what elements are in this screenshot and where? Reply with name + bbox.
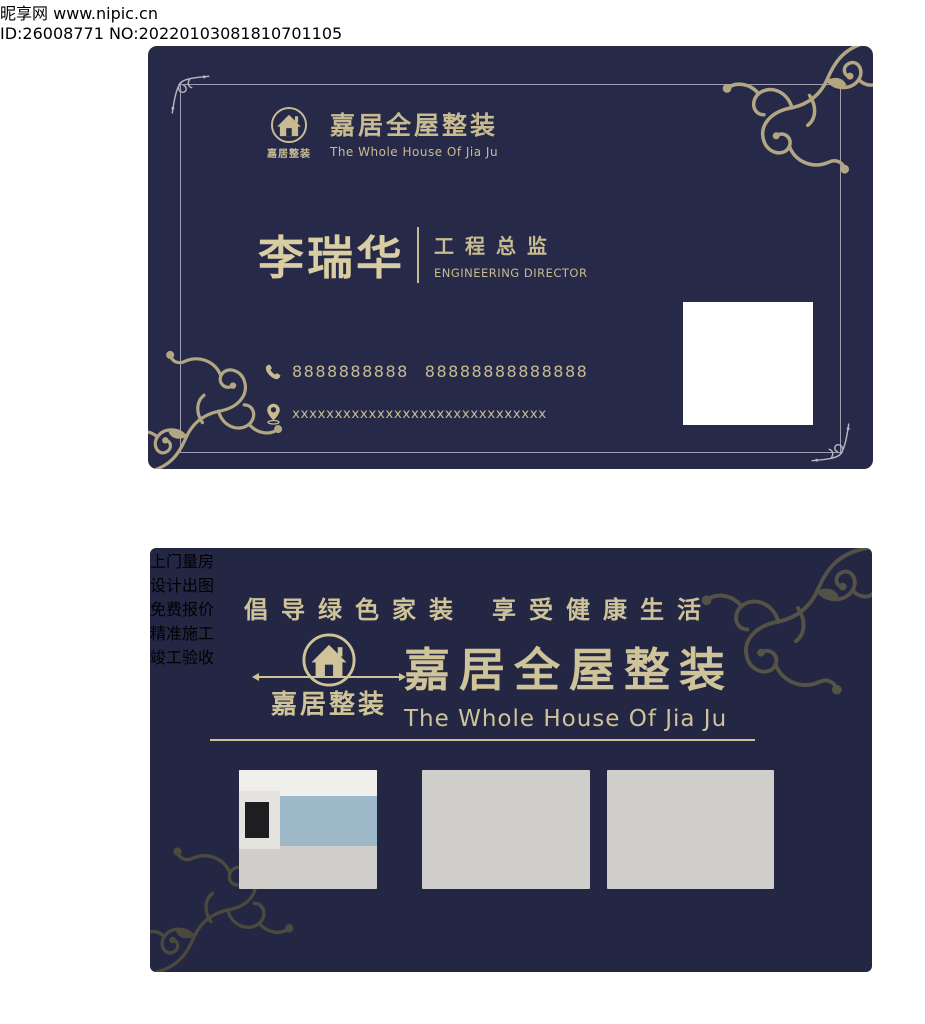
image-id-badge: ID:26008771 NO:20220103081810701105 [0,24,925,43]
brand-title-block: 嘉居全屋整装 The Whole House Of Jia Ju [404,634,734,732]
phone-row: 888888888888888888888888 [264,362,588,381]
interior-photo-1 [239,770,377,889]
brand-logo: 嘉居整装 [254,632,404,721]
corner-ornament-icon [811,423,851,463]
page-canvas: 嘉居整装 嘉居全屋整装 The Whole House Of Jia Ju 李瑞… [0,0,925,1024]
slogan-right: 享受健康生活 [492,590,714,625]
brand-subtitle: The Whole House Of Jia Ju [330,145,498,159]
brand-title: 嘉居全屋整装 [404,634,734,700]
interior-photo-2 [422,770,590,889]
process-step-1: 上门量房 [150,548,872,572]
address-row: xxxxxxxxxxxxxxxxxxxxxxxxxxxxxx [264,403,588,425]
house-logo-icon [301,632,357,688]
qr-code-placeholder [683,302,813,425]
site-name: 昵享网 [0,4,48,23]
address-text: xxxxxxxxxxxxxxxxxxxxxxxxxxxxxx [292,406,547,422]
location-pin-icon [264,403,283,425]
phone-icon [264,363,282,381]
site-url: www.nipic.cn [53,4,158,23]
phone-number-1: 8888888888 [292,362,409,381]
site-watermark: 昵享网 www.nipic.cn [0,0,925,24]
section-divider [210,739,755,741]
interior-photo-3 [607,770,774,889]
brand-title: 嘉居全屋整装 [330,106,498,142]
divider-line [417,227,419,283]
slogan-left: 倡导绿色家装 [244,590,466,625]
brand-subtitle: The Whole House Of Jia Ju [404,706,734,732]
house-logo-icon [270,106,308,144]
phone-number-2: 88888888888888 [425,362,589,381]
slogan: 倡导绿色家装 享受健康生活 [244,590,714,625]
person-title-en: ENGINEERING DIRECTOR [434,266,587,280]
brand-logo: 嘉居整装 嘉居全屋整装 The Whole House Of Jia Ju [260,106,498,160]
business-card-front: 嘉居整装 嘉居全屋整装 The Whole House Of Jia Ju 李瑞… [148,46,873,469]
person-title-cn: 工程总监 [434,230,587,259]
person-block: 李瑞华 工程总监 ENGINEERING DIRECTOR [258,222,587,288]
person-name: 李瑞华 [258,222,405,288]
business-card-back: 倡导绿色家装 享受健康生活 嘉居整装 嘉居全屋整装 The Whole Hous… [150,548,872,972]
brand-logo-text: 嘉居整装 [271,684,387,721]
corner-ornament-icon [170,74,210,114]
contact-block: 888888888888888888888888 xxxxxxxxxxxxxxx… [264,362,588,425]
brand-logo-text: 嘉居整装 [267,145,311,160]
photo1-tv [245,802,270,838]
logo-divider-line [258,676,400,678]
